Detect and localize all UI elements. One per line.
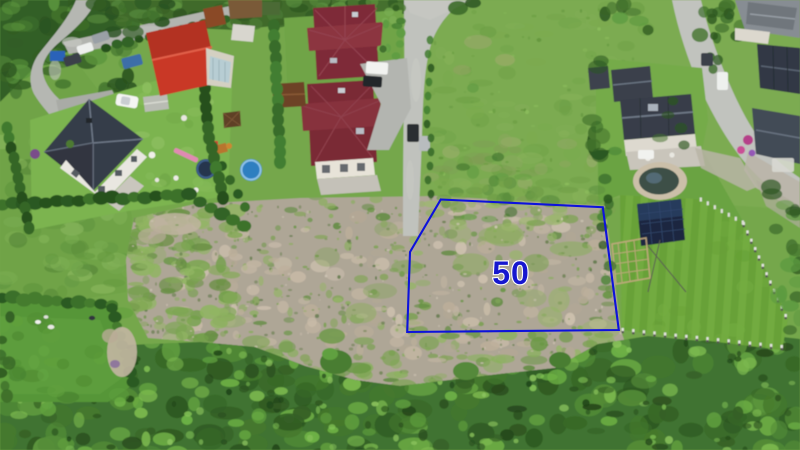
svg-text:50: 50	[492, 255, 530, 291]
